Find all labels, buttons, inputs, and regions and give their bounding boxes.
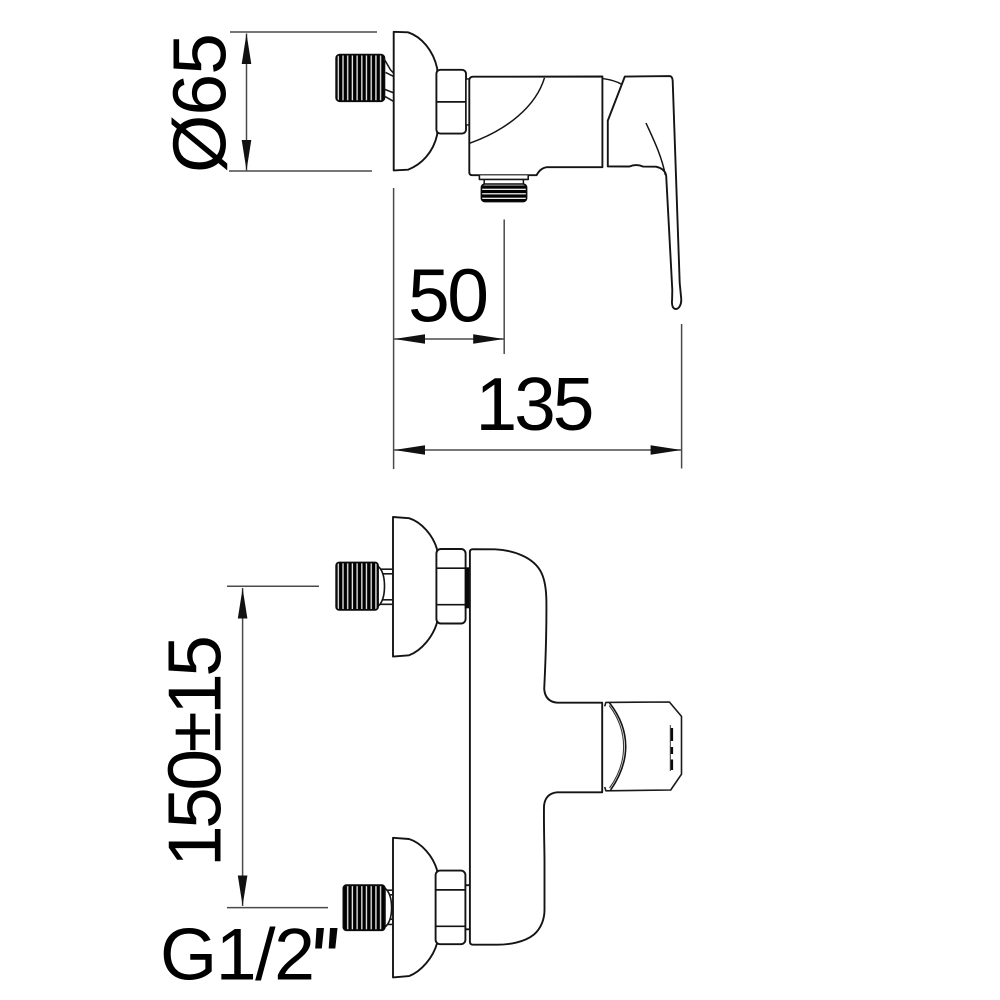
svg-text:150±15: 150±15 bbox=[153, 635, 237, 867]
svg-text:G1/2: G1/2 bbox=[160, 913, 315, 996]
svg-text:50: 50 bbox=[408, 254, 489, 338]
svg-text:135: 135 bbox=[476, 362, 595, 446]
svg-text:Ø65: Ø65 bbox=[158, 33, 242, 173]
